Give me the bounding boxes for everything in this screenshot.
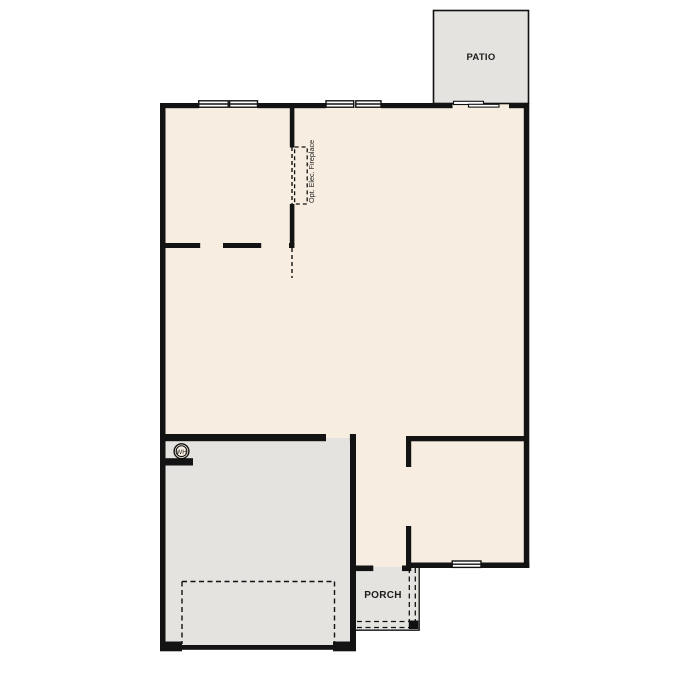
svg-text:PATIO: PATIO: [466, 52, 495, 63]
svg-text:PORCH: PORCH: [364, 590, 402, 601]
svg-text:Opt. Elec. Fireplace: Opt. Elec. Fireplace: [307, 140, 316, 203]
svg-text:WH: WH: [176, 449, 187, 456]
